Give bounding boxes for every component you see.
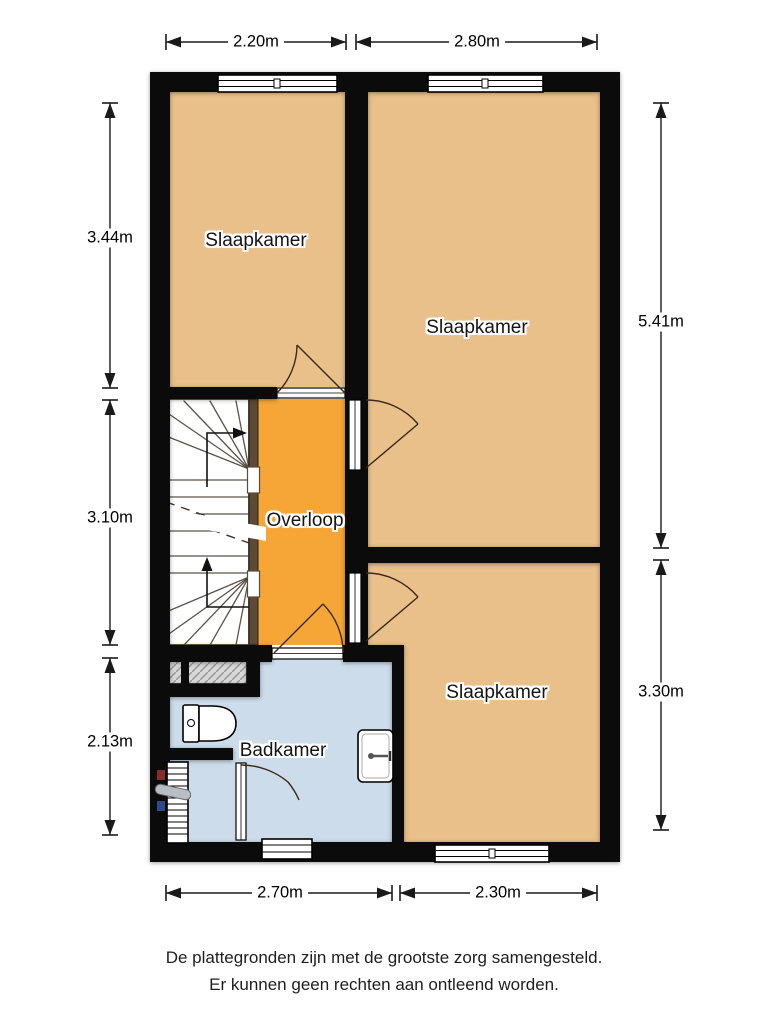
handrail-post xyxy=(248,467,260,493)
dim-top-left: 2.20m xyxy=(228,33,284,52)
washbasin xyxy=(358,730,393,782)
dim-right-2: 3.30m xyxy=(633,683,689,702)
dim-left-2: 3.10m xyxy=(82,509,138,528)
floor-plan: Slaapkamer Slaapkamer Slaapkamer Overloo… xyxy=(0,0,768,1024)
disclaimer-line-2: Er kunnen geen rechten aan ontleend word… xyxy=(209,975,559,995)
window-bathroom xyxy=(262,839,312,859)
handrail xyxy=(249,399,258,645)
dim-right-1: 5.41m xyxy=(633,313,689,332)
disclaimer-line-1: De plattegronden zijn met de grootste zo… xyxy=(166,948,603,968)
handrail-post xyxy=(248,571,260,597)
window-top-left xyxy=(218,75,337,92)
room-label-bathroom: Badkamer xyxy=(240,740,327,762)
room-label-bedroom-right: Slaapkamer xyxy=(426,317,527,339)
toilet xyxy=(183,705,236,742)
dim-top-right: 2.80m xyxy=(449,33,505,52)
staircase xyxy=(159,399,266,645)
dim-bottom-right: 2.30m xyxy=(470,884,526,903)
window-bottom-right xyxy=(435,845,549,862)
window-top-right xyxy=(428,75,543,92)
room-label-bedroom-bottom-right: Slaapkamer xyxy=(446,682,547,704)
radiator-valve-red xyxy=(157,770,165,780)
dim-left-1: 3.44m xyxy=(82,229,138,248)
dim-left-3: 2.13m xyxy=(82,733,138,752)
radiator-valve-blue xyxy=(157,801,165,811)
room-label-bedroom-top-left: Slaapkamer xyxy=(205,230,306,252)
dim-bottom-left: 2.70m xyxy=(252,884,308,903)
room-label-landing: Overloop xyxy=(266,510,343,532)
